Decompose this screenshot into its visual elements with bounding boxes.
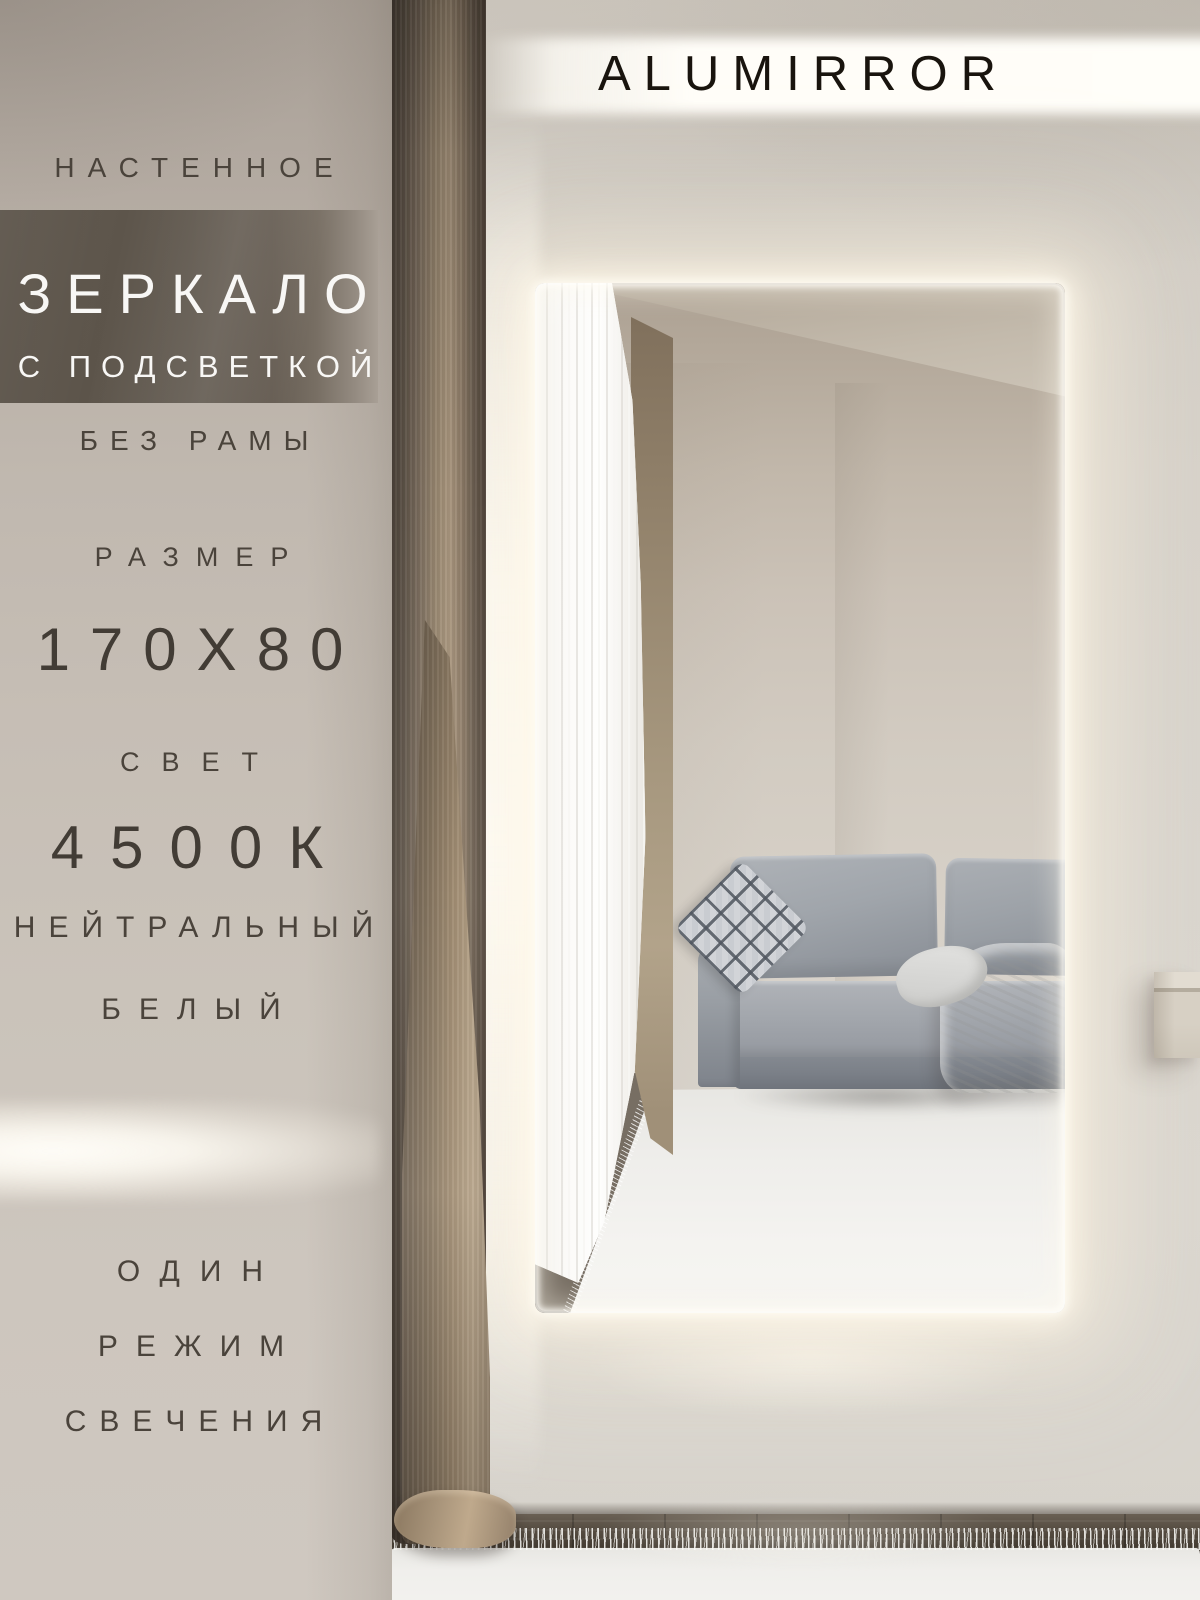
size-value: 170X80 — [0, 615, 400, 684]
product-listing-image: ALUMIRROR НАСТЕННОЕ ЗЕРКАЛО С ПОДСВЕТКОЙ… — [0, 0, 1200, 1600]
light-label: СВЕТ — [0, 747, 400, 778]
led-rim-glow — [535, 283, 1065, 1313]
label-frameless: БЕЗ РАМЫ — [0, 425, 400, 457]
product-subtitle: С ПОДСВЕТКОЙ — [0, 349, 400, 385]
mode-line3: СВЕЧЕНИЯ — [0, 1405, 400, 1440]
wall-light-streak — [0, 1102, 380, 1200]
mode-line1: ОДИН — [0, 1255, 400, 1290]
size-label: РАЗМЕР — [0, 542, 400, 573]
label-wall-mounted: НАСТЕННОЕ — [0, 152, 400, 184]
light-description-line1: НЕЙТРАЛЬНЫЙ — [0, 911, 400, 946]
floor-light-reflection — [520, 1492, 1080, 1584]
curtain-pool — [394, 1490, 516, 1548]
floating-shelf — [1154, 972, 1200, 1058]
led-backlit-mirror — [535, 283, 1065, 1313]
mode-line2: РЕЖИМ — [0, 1330, 400, 1365]
light-temperature-value: 4500К — [0, 813, 400, 882]
brand-name: ALUMIRROR — [598, 50, 1198, 99]
mirror-lower-glow — [490, 1290, 1130, 1460]
product-title: ЗЕРКАЛО — [0, 262, 400, 326]
light-description-line2: БЕЛЫЙ — [0, 993, 400, 1028]
